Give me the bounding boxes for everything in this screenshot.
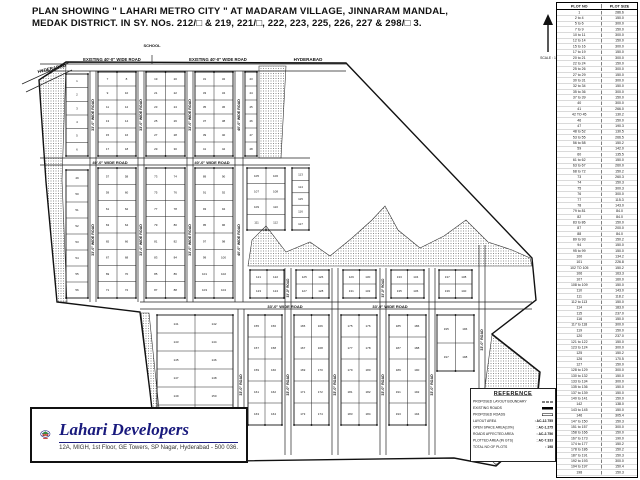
plot-number: 5	[76, 134, 78, 138]
plot-no-cell: 15 to 16	[557, 45, 602, 49]
plot-size-cell: 200.0	[602, 227, 637, 231]
corner-mark	[97, 71, 98, 73]
plot-no-cell: 110	[557, 289, 602, 293]
plot-number: 89	[203, 174, 207, 178]
plot-block: 121122123124	[249, 269, 284, 299]
plot-size-cell: 300.0	[602, 34, 637, 38]
plot-number: 37	[203, 119, 207, 123]
road-label: 33'-0" ROAD	[286, 278, 290, 298]
plot-no-cell: 112 to 113	[557, 301, 602, 305]
plot-no-cell: 101	[557, 261, 602, 265]
plot-number: 38	[222, 119, 226, 123]
plot-size-cell: 300.0	[602, 90, 637, 94]
plot-number: 144	[211, 340, 216, 344]
plot-number: 43	[249, 77, 253, 81]
corner-mark	[264, 424, 265, 426]
plot-no-cell: 79 to 81	[557, 210, 602, 214]
corner-mark	[256, 155, 257, 157]
corner-mark	[358, 424, 359, 426]
plot-size-cell: 300.0	[602, 369, 637, 373]
plot-no-cell: 126	[557, 357, 602, 361]
plot-no-header: PLOT NO	[557, 4, 602, 9]
plot-no-cell: 187 to 191	[557, 454, 602, 458]
corner-mark	[184, 155, 185, 157]
plot-block: 8990919293949596979899100101102103104	[194, 167, 233, 299]
plan-title: PLAN SHOWING " LAHARI METRO CITY " AT MA…	[32, 6, 550, 29]
plot-number: 96	[222, 223, 226, 227]
plot-number: 54	[75, 256, 79, 260]
plot-no-cell: 12 to 14	[557, 39, 602, 43]
corner-mark	[473, 314, 474, 316]
plot-number: 40	[222, 133, 226, 137]
plot-size-cell: 118.2	[602, 295, 637, 299]
plot-no-cell: 192 to 193	[557, 460, 602, 464]
plot-number: 39	[203, 133, 207, 137]
plot-number: 104	[221, 288, 226, 292]
plot-number: 84	[174, 256, 178, 260]
plot-size-cell: 150.3	[602, 181, 637, 185]
corner-mark	[194, 155, 195, 157]
plot-number: 61	[106, 207, 110, 211]
plot-number: 86	[174, 272, 178, 276]
plot-no-cell: 133 to 134	[557, 380, 602, 384]
road-label: 33'-0" WIDE ROAD	[372, 304, 407, 309]
plot-number: 91	[203, 191, 207, 195]
corner-mark	[375, 297, 376, 299]
plot-size-cell: 150.0	[602, 51, 637, 55]
corner-mark	[249, 269, 250, 271]
corner-mark	[407, 297, 408, 299]
corner-mark	[266, 297, 267, 299]
plot-number: 141	[173, 322, 178, 326]
plot-number: 56	[75, 288, 79, 292]
plot-number: 165	[300, 324, 305, 328]
plot-no-cell: 73	[557, 176, 602, 180]
plot-no-cell: 120	[557, 335, 602, 339]
corner-mark	[281, 314, 282, 316]
plot-size-cell: 150.2	[602, 448, 637, 452]
plot-size-cell: 300.0	[602, 45, 637, 49]
plot-block: 73747576777879808182838485868788	[145, 167, 185, 299]
plot-block: 123456	[65, 73, 88, 157]
plot-number: 109	[254, 205, 259, 209]
plot-number: 188	[414, 346, 419, 350]
corner-mark	[407, 424, 408, 426]
plot-block: 165166167168169170171172173174	[293, 314, 329, 426]
plot-block: 185186187188189190191192193194	[388, 314, 426, 426]
plot-number: 20	[174, 77, 178, 81]
plot-number: 30	[174, 147, 178, 151]
plot-no-cell: 87	[557, 227, 602, 231]
plot-number: 28	[174, 133, 178, 137]
plot-number: 146	[211, 358, 216, 362]
corner-mark	[455, 370, 456, 372]
plot-no-cell: 151 to 157	[557, 425, 602, 429]
plot-number: 87	[154, 288, 158, 292]
corner-mark	[232, 167, 233, 169]
plot-size-cell: 237.0	[602, 335, 637, 339]
corner-mark	[436, 314, 437, 316]
plot-size-cell: 150.0	[602, 431, 637, 435]
plot-number: 173	[300, 412, 305, 416]
plot-number: 83	[154, 256, 158, 260]
plot-no-cell: 115	[557, 312, 602, 316]
plot-size-cell: 150.0	[602, 329, 637, 333]
plot-size-cell: 138.0	[602, 403, 637, 407]
corner-mark	[390, 297, 391, 299]
plot-number: 92	[222, 191, 226, 195]
plot-size-cell: 130.2	[602, 113, 637, 117]
plot-size-cell: 150.0	[602, 391, 637, 395]
corner-mark	[293, 424, 294, 426]
plot-number: 25	[154, 119, 158, 123]
road-label: 33'-0" WIDE ROAD	[139, 224, 143, 256]
plot-size-cell: 163.3	[602, 272, 637, 276]
corner-mark	[308, 229, 309, 231]
plot-number: 130	[365, 275, 370, 279]
corner-mark	[213, 167, 214, 169]
plot-no-cell: 61 to 62	[557, 159, 602, 163]
table-row: 198150.3	[557, 470, 637, 476]
plot-number: 44	[249, 91, 253, 95]
plot-size-cell: 266.5	[602, 136, 637, 140]
plot-number: 81	[154, 239, 158, 243]
corner-mark	[194, 297, 195, 299]
corner-mark	[265, 167, 266, 169]
plot-number: 53	[75, 240, 79, 244]
plot-number: 36	[222, 105, 226, 109]
corner-mark	[97, 155, 98, 157]
plot-block: 195196197198	[436, 314, 474, 372]
plot-size-cell: 150.0	[602, 363, 637, 367]
plot-size-cell: 300.0	[602, 460, 637, 464]
plot-number: 75	[154, 191, 158, 195]
plot-no-cell: 37 to 39	[557, 96, 602, 100]
plot-number: 112	[273, 220, 278, 224]
corner-mark	[455, 314, 456, 316]
plot-number: 23	[154, 105, 158, 109]
road-label: 33'-0" WIDE ROAD	[267, 304, 302, 309]
plot-number: 187	[396, 346, 401, 350]
plot-no-cell: 174 to 177	[557, 442, 602, 446]
corner-mark	[97, 297, 98, 299]
plot-no-cell: 22 to 24	[557, 62, 602, 66]
plot-no-cell: 56 to 58	[557, 141, 602, 145]
corner-mark	[194, 71, 195, 73]
plot-number: 22	[174, 91, 178, 95]
corner-mark	[295, 269, 296, 271]
corner-mark	[135, 167, 136, 169]
plot-number: 3	[76, 106, 78, 110]
plot-block: 125126127128	[295, 269, 329, 299]
plot-size-cell: 150.3	[602, 471, 637, 475]
plot-size-cell: 300.3	[602, 187, 637, 191]
plot-number: 95	[203, 223, 207, 227]
plot-number: 197	[444, 355, 449, 359]
plot-number: 49	[75, 176, 79, 180]
plot-number: 136	[413, 289, 418, 293]
plot-number: 161	[254, 390, 259, 394]
plot-number: 51	[75, 208, 79, 212]
north-arrow-head	[543, 14, 553, 25]
corner-mark	[194, 314, 195, 316]
plot-no-cell: 94	[557, 244, 602, 248]
plot-size-cell: 300.0	[602, 380, 637, 384]
plot-number: 67	[106, 256, 110, 260]
plot-number: 163	[254, 412, 259, 416]
plot-size-cell: 150.0	[602, 318, 637, 322]
corner-mark	[145, 297, 146, 299]
legend-solid-symbol	[542, 407, 553, 410]
corner-mark	[423, 297, 424, 299]
plot-number: 64	[125, 223, 129, 227]
plot-number: 69	[106, 272, 110, 276]
plot-number: 156	[271, 324, 276, 328]
developer-logo-box: Lahari Developers 12A, MIGH, 1st Floor, …	[30, 407, 248, 463]
road-label: 40'-0" WIDE ROAD	[237, 99, 241, 131]
corner-mark	[425, 424, 426, 426]
plot-no-cell: 82	[557, 215, 602, 219]
corner-mark	[340, 314, 341, 316]
corner-mark	[116, 71, 117, 73]
corner-mark	[116, 297, 117, 299]
plot-size-cell: 150.0	[602, 28, 637, 32]
plot-no-cell: 27 to 29	[557, 73, 602, 77]
corner-mark	[284, 167, 285, 169]
plot-number: 48	[249, 147, 253, 151]
plot-no-cell: 102 TO 105	[557, 266, 602, 270]
plot-number: 155	[254, 324, 259, 328]
plot-size-cell: 150.0	[602, 119, 637, 123]
corner-mark	[328, 424, 329, 426]
plot-size-cell: 150.0	[602, 374, 637, 378]
corner-mark	[388, 314, 389, 316]
plot-size-cell: 300.0	[602, 425, 637, 429]
plot-size-cell: 115.3	[602, 198, 637, 202]
plot-size-cell: 150.2	[602, 238, 637, 242]
plot-number: 128	[318, 289, 323, 293]
corner-mark	[423, 269, 424, 271]
corner-mark	[87, 73, 88, 75]
plot-number: 32	[222, 77, 226, 81]
plot-no-cell: 75	[557, 187, 602, 191]
corner-mark	[471, 269, 472, 271]
plot-number: 4	[76, 120, 78, 124]
plot-size-cell: 160.0	[602, 278, 637, 282]
plot-block: 129130131132	[342, 269, 376, 299]
plot-number: 134	[413, 275, 418, 279]
reference-value: : 198	[545, 444, 553, 451]
plot-number: 80	[174, 223, 178, 227]
plot-no-cell: 127	[557, 363, 602, 367]
plot-number: 196	[462, 327, 467, 331]
plot-no-cell: 135 to 136	[557, 386, 602, 390]
plot-number: 177	[347, 346, 352, 350]
corner-mark	[249, 297, 250, 299]
corner-mark	[184, 71, 185, 73]
corner-mark	[308, 167, 309, 169]
plot-number: 139	[445, 289, 450, 293]
plot-no-cell: 83 to 86	[557, 221, 602, 225]
road-label: SCHOOL	[143, 43, 161, 48]
corner-mark	[291, 229, 292, 231]
corner-mark	[375, 269, 376, 271]
reference-content: REFERENCE PROPOSED LAYOUT BOUNDARYEXISTI…	[471, 389, 555, 452]
plot-size-cell: 84.0	[602, 215, 637, 219]
plot-number: 160	[271, 368, 276, 372]
plot-number: 140	[461, 289, 466, 293]
corner-mark	[213, 71, 214, 73]
plot-size-cell: 300.0	[602, 346, 637, 350]
corner-mark	[247, 314, 248, 316]
plot-no-cell: 167 to 173	[557, 437, 602, 441]
plot-size-cell: 150.0	[602, 301, 637, 305]
road-label: 33'-0" WIDE ROAD	[91, 224, 95, 256]
open-space-hatch	[39, 64, 539, 465]
plot-number: 103	[202, 288, 207, 292]
plot-size-cell: 226.8	[602, 261, 637, 265]
plot-size-cell: 150.2	[602, 170, 637, 174]
corner-mark	[376, 314, 377, 316]
plot-number: 52	[75, 224, 79, 228]
corner-mark	[156, 314, 157, 316]
plot-number: 167	[300, 346, 305, 350]
plot-no-cell: 111	[557, 295, 602, 299]
plot-number: 34	[222, 91, 226, 95]
plot-number: 111	[254, 220, 259, 224]
road-label: 33'-0" ROAD	[430, 374, 434, 396]
road-label: 33'-0" ROAD	[480, 329, 484, 351]
plot-number: 68	[125, 256, 129, 260]
plot-no-cell: 100	[557, 255, 602, 259]
plot-number: 12	[125, 105, 129, 109]
corner-mark	[184, 297, 185, 299]
plot-number: 71	[106, 288, 110, 292]
plot-no-cell: 78	[557, 204, 602, 208]
plot-no-cell: 198	[557, 471, 602, 475]
plot-number: 46	[249, 119, 253, 123]
plot-number: 182	[365, 390, 370, 394]
plot-no-cell: 20 to 21	[557, 56, 602, 60]
corner-mark	[232, 297, 233, 299]
plot-number: 78	[174, 207, 178, 211]
corner-mark	[65, 155, 66, 157]
plot-size-cell: 170.5	[602, 357, 637, 361]
plot-size-cell: 142.0	[602, 147, 637, 151]
corner-mark	[145, 155, 146, 157]
plot-size-cell: 84.0	[602, 210, 637, 214]
plot-size-cell: 150.0	[602, 17, 637, 21]
plot-size-cell: 300.0	[602, 102, 637, 106]
plot-size-cell: 150.0	[602, 408, 637, 412]
plot-number: 19	[154, 77, 158, 81]
plot-size-header: PLOT SIZE	[602, 4, 637, 9]
corner-mark	[232, 155, 233, 157]
plot-no-cell: 107	[557, 278, 602, 282]
plot-size-cell: 260.0	[602, 164, 637, 168]
corner-mark	[312, 297, 313, 299]
company-address: 12A, MIGH, 1st Floor, GE Towers, SP Naga…	[59, 442, 238, 451]
plot-no-cell: 74	[557, 181, 602, 185]
legend-dashed-symbol	[542, 401, 553, 402]
plot-size-cell: 150.0	[602, 96, 637, 100]
plot-size-cell: 190.3	[602, 124, 637, 128]
plot-number: 116	[298, 210, 303, 214]
plot-number: 113	[298, 172, 303, 176]
corner-mark	[65, 169, 66, 171]
plot-number: 11	[106, 105, 109, 109]
plot-number: 18	[125, 147, 129, 151]
corner-mark	[293, 314, 294, 316]
legend-open-symbol	[542, 414, 553, 417]
plot-block: 137138139140	[438, 269, 472, 299]
plot-number: 74	[174, 174, 178, 178]
plot-number: 66	[125, 239, 129, 243]
plot-no-cell: 142	[557, 403, 602, 407]
plot-no-cell: 47	[557, 124, 602, 128]
plot-block: 175176177178179180181182183184	[340, 314, 377, 426]
plot-number: 127	[302, 289, 307, 293]
plot-number: 82	[174, 239, 178, 243]
corner-mark	[455, 269, 456, 271]
corner-mark	[342, 297, 343, 299]
plot-number: 124	[273, 289, 278, 293]
plot-size-cell: 266.0	[602, 107, 637, 111]
corner-mark	[438, 297, 439, 299]
plot-number: 15	[106, 133, 110, 137]
plot-size-cell: 134.2	[602, 255, 637, 259]
plot-number: 99	[203, 256, 207, 260]
plot-no-cell: 123 to 124	[557, 346, 602, 350]
plot-number: 129	[349, 275, 354, 279]
plot-number: 174	[318, 412, 323, 416]
plot-block: 192021222324252627282930	[145, 71, 185, 157]
plot-no-cell: 40	[557, 102, 602, 106]
corner-mark	[232, 314, 233, 316]
plot-number: 50	[75, 192, 79, 196]
plot-table-rows: 1286.62 to 4150.05 to 6300.07 to 9150.01…	[557, 10, 637, 476]
plot-number: 10	[125, 91, 129, 95]
plot-size-cell: 150.4	[602, 465, 637, 469]
plot-no-cell: 25 to 26	[557, 68, 602, 72]
plot-number: 9	[107, 91, 109, 95]
plot-number: 57	[106, 174, 110, 178]
corner-mark	[135, 297, 136, 299]
corner-mark	[246, 229, 247, 231]
plot-size-cell: 150.0	[602, 39, 637, 43]
plot-number: 108	[273, 189, 278, 193]
road-label: 33'-0" WIDE ROAD	[188, 224, 192, 256]
plot-no-cell: 53 to 55	[557, 136, 602, 140]
plot-number: 90	[222, 174, 226, 178]
plot-number: 85	[154, 272, 158, 276]
house-logo-icon	[40, 412, 51, 458]
plot-number: 135	[397, 289, 402, 293]
corner-mark	[87, 155, 88, 157]
plot-no-cell: 178 to 186	[557, 448, 602, 452]
corner-mark	[264, 314, 265, 316]
plot-size-cell: 143.0	[602, 204, 637, 208]
plot-number: 176	[365, 324, 370, 328]
plot-number: 178	[365, 346, 370, 350]
plot-number: 126	[318, 275, 323, 279]
corner-mark	[145, 71, 146, 73]
plot-number: 88	[174, 288, 178, 292]
plot-size-cell: 150.2	[602, 266, 637, 270]
plot-no-cell: 194 to 197	[557, 465, 602, 469]
plot-number: 194	[414, 412, 419, 416]
corner-mark	[407, 269, 408, 271]
